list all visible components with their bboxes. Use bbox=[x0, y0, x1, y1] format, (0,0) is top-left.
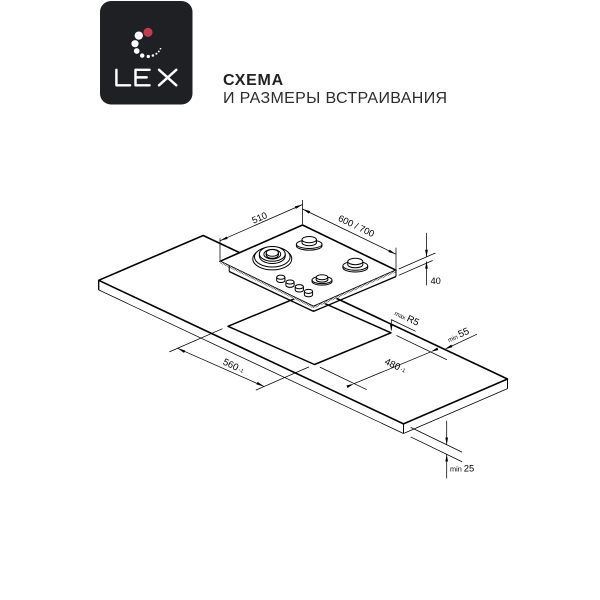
svg-text:40: 40 bbox=[431, 276, 441, 286]
svg-text:min 25: min 25 bbox=[450, 463, 474, 474]
